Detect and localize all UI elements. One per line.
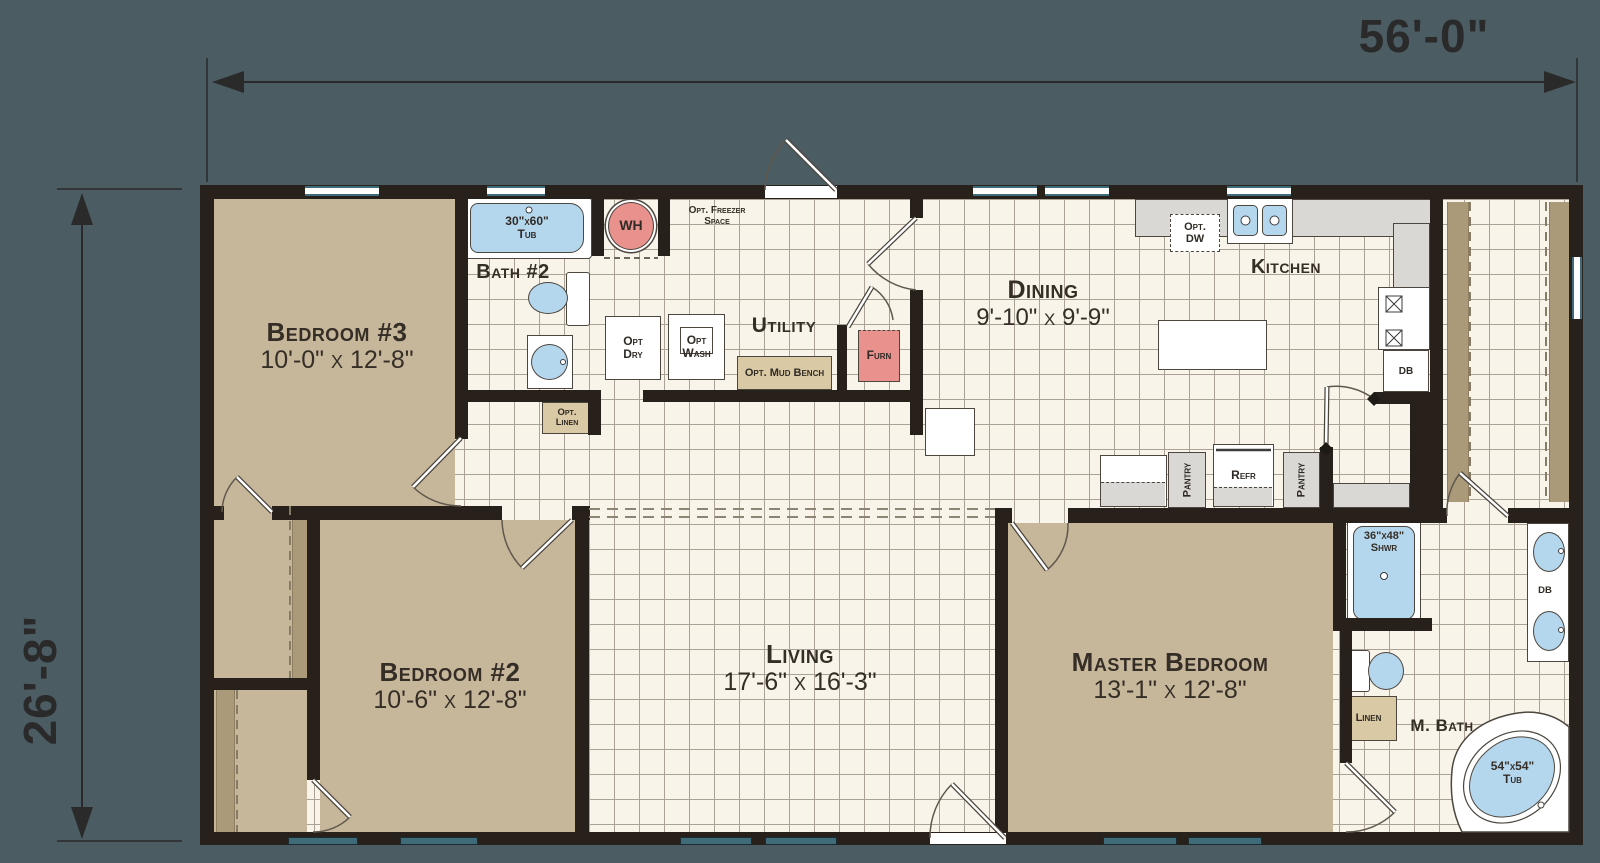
living-name: Living xyxy=(650,640,950,669)
bedroom2-name: Bedroom #2 xyxy=(300,658,600,687)
door-stop-diamond-2 xyxy=(1367,392,1381,406)
bath2-name: Bath #2 xyxy=(476,261,549,283)
bedroom3-size: 10'-0" x 12'-8" xyxy=(187,347,487,375)
door-arc xyxy=(765,140,786,190)
door-arc xyxy=(222,477,237,512)
bedroom3-name: Bedroom #3 xyxy=(187,318,487,347)
door-leaf xyxy=(1346,763,1395,812)
utility-label: Utility xyxy=(684,314,884,337)
vanity-faucet-top xyxy=(1559,549,1564,554)
dim-left-arrow-bottom xyxy=(71,807,93,839)
door-living-exterior xyxy=(930,784,1005,838)
mbath-name: M. Bath xyxy=(1410,716,1473,735)
door-leaf xyxy=(952,784,1005,838)
floor-plan-page: { "dimensions": { "width": "56'-0\"", "h… xyxy=(0,0,1600,863)
door-bedroom2-closet xyxy=(313,780,350,832)
door-leaf xyxy=(313,780,350,817)
living-label: Living 17'-6" x 16'-3" xyxy=(650,640,950,696)
door-bedroom3-closet xyxy=(222,477,272,512)
overall-width-dim: 56'-0" xyxy=(1254,8,1594,64)
sink-hole-right xyxy=(1270,216,1279,225)
tub30-faucet xyxy=(526,207,532,213)
freezer-label2: Space xyxy=(657,216,777,227)
door-walkin-closet xyxy=(1447,473,1508,516)
door-leaf xyxy=(1012,523,1047,570)
door-stop-diamond-1 xyxy=(1319,442,1333,456)
dim-left-arrow-top xyxy=(71,193,93,225)
door-arc xyxy=(1327,386,1374,399)
dim-top-arrow-left xyxy=(212,71,244,93)
overall-height-dim: 26'-8" xyxy=(15,580,65,780)
tub54-label: 54"x54" Tub xyxy=(1455,760,1570,786)
door-leaf xyxy=(1326,387,1327,449)
door-master xyxy=(1012,523,1068,570)
master-name: Master Bedroom xyxy=(1020,648,1320,677)
door-bedroom3 xyxy=(413,438,461,506)
living-size: 17'-6" x 16'-3" xyxy=(650,669,950,697)
floor-plan: 30"x60" Tub WH Opt Dry Opt Wash Opt. Mud… xyxy=(0,0,1600,863)
freezer-label1: Opt. Freezer xyxy=(657,205,777,216)
sink-hole-left xyxy=(1241,216,1250,225)
door-kitchen-nook xyxy=(1319,386,1381,456)
door-arc xyxy=(1047,523,1068,570)
door-leaf xyxy=(1460,473,1508,516)
door-leaf xyxy=(413,438,461,487)
door-arc xyxy=(313,817,350,832)
vanity-faucet-bottom xyxy=(1559,628,1564,633)
door-arc xyxy=(930,784,952,838)
door-leaf xyxy=(237,477,272,512)
door-entry xyxy=(765,140,836,190)
dining-size: 9'-10" x 9'-9" xyxy=(893,305,1193,331)
door-arc xyxy=(1346,812,1395,832)
doors xyxy=(222,140,1508,838)
dining-name: Dining xyxy=(893,277,1193,305)
door-arc xyxy=(502,520,522,568)
door-bedroom2 xyxy=(502,520,572,568)
bedroom3-label: Bedroom #3 10'-0" x 12'-8" xyxy=(187,318,487,374)
door-arc xyxy=(1447,473,1460,516)
door-arc xyxy=(413,487,461,506)
mbath-label: M. Bath xyxy=(1342,717,1542,736)
bedroom2-size: 10'-6" x 12'-8" xyxy=(300,687,600,715)
dashed-lines xyxy=(237,202,1546,832)
bath2-sink-faucet xyxy=(561,360,566,365)
dim-top-arrow-right xyxy=(1544,71,1576,93)
dining-label: Dining 9'-10" x 9'-9" xyxy=(893,277,1193,331)
master-label: Master Bedroom 13'-1" x 12'-8" xyxy=(1020,648,1320,704)
bedroom2-label: Bedroom #2 10'-6" x 12'-8" xyxy=(300,658,600,714)
kitchen-label: Kitchen xyxy=(1186,256,1386,278)
door-leaf xyxy=(522,520,572,568)
door-mbath xyxy=(1346,763,1395,832)
door-leaf xyxy=(786,140,836,190)
tub54-label-tub: Tub xyxy=(1455,773,1570,786)
tub54-drain xyxy=(1538,802,1544,808)
master-size: 13'-1" x 12'-8" xyxy=(1020,677,1320,705)
kitchen-name: Kitchen xyxy=(1251,256,1321,278)
utility-name: Utility xyxy=(752,314,817,337)
door-leaf xyxy=(868,218,916,264)
shower-drain xyxy=(1381,573,1388,580)
bath2-label: Bath #2 xyxy=(413,261,613,283)
freezer-label: Opt. Freezer Space xyxy=(657,205,777,227)
